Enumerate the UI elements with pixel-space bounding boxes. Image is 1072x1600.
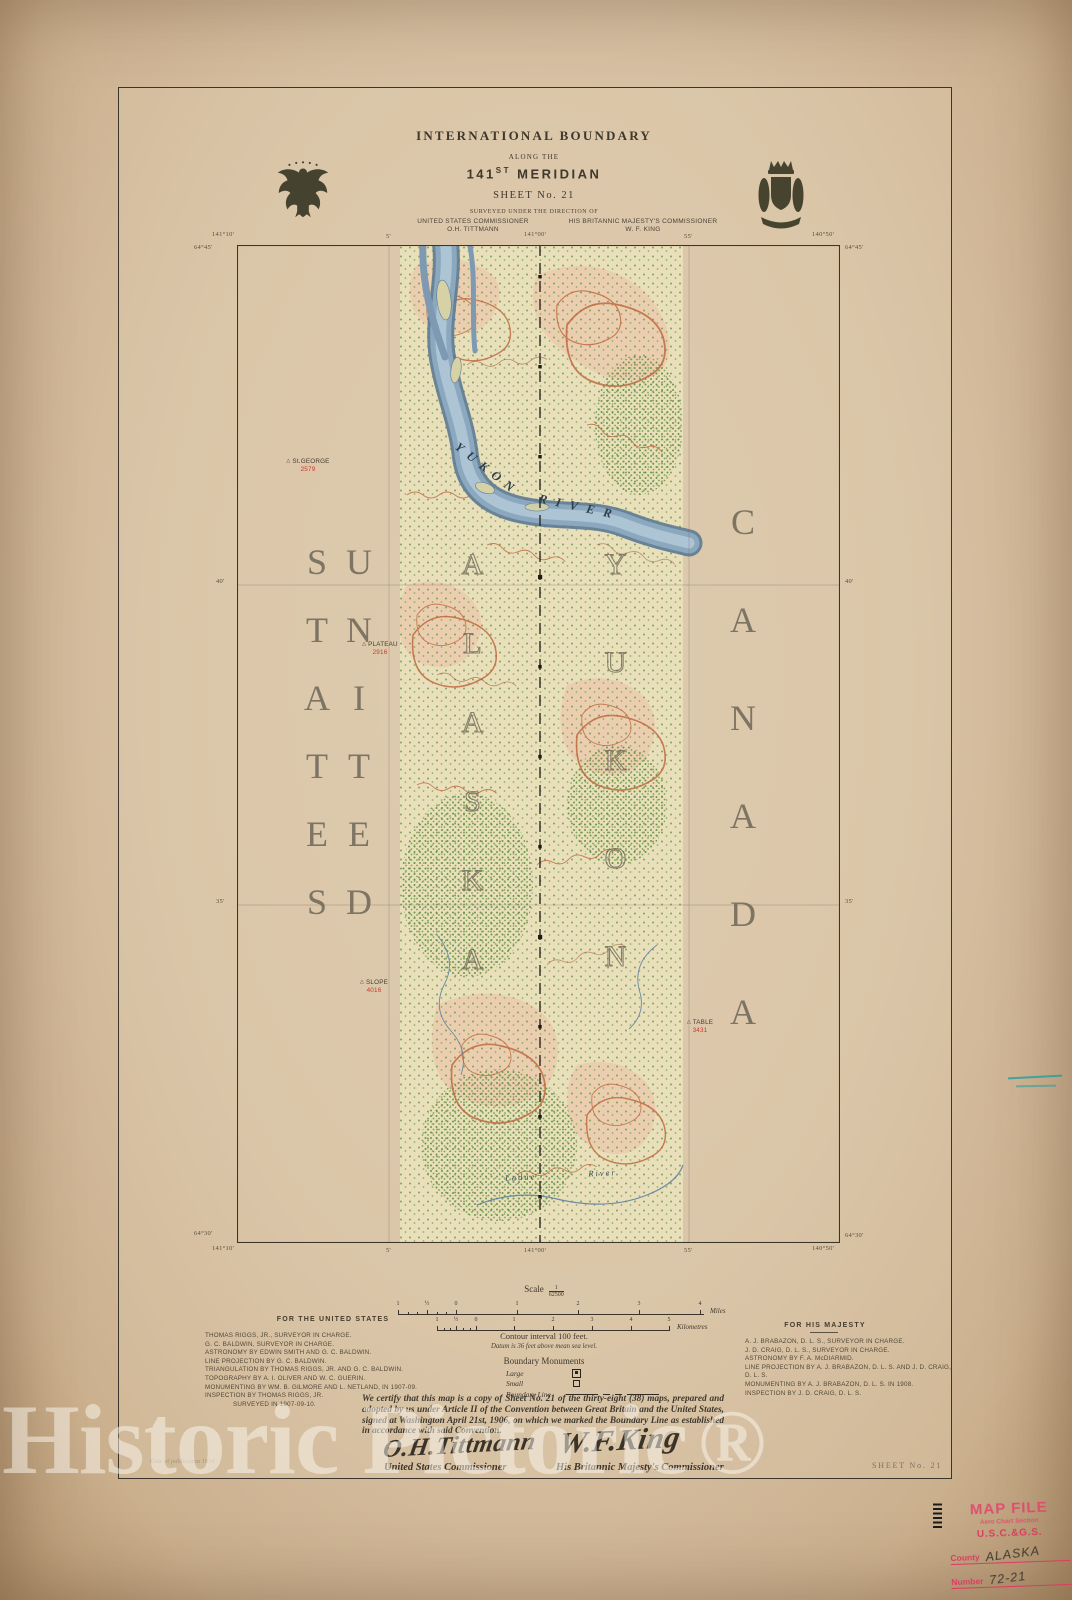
contour-interval-note: Contour interval 100 feet. [434, 1331, 654, 1341]
us-signature-title: United States Commissioner [384, 1462, 507, 1473]
scale-tick-label: 0 [455, 1301, 458, 1307]
triangle-icon: △ [362, 641, 366, 647]
credit-line: A. J. BRABAZON, D. L. S., SURVEYOR IN CH… [745, 1338, 955, 1347]
number-label: Number [951, 1576, 983, 1587]
graticule-label: 55' [684, 233, 693, 240]
graticule-label: 55' [684, 1247, 693, 1254]
credit-line: J. D. CRAIG, D. L. S., SURVEYOR IN CHARG… [745, 1347, 955, 1356]
graticule-label: 64°45' [194, 244, 213, 251]
scale-tick-label: 3 [638, 1301, 641, 1307]
scale-tick-label: 2 [552, 1317, 555, 1323]
credit-line: MONUMENTING BY A. J. BRABAZON, D. L. S. … [745, 1381, 955, 1390]
uk-commissioner-name: W. F. KING [548, 226, 738, 234]
station-elevation: 4016 [342, 987, 406, 994]
map-file-stamp: MAP FILE Aero Chart Section U.S.C.&G.S. … [949, 1498, 1072, 1589]
station-name: TABLE [693, 1019, 713, 1026]
monument-large-icon [572, 1369, 581, 1378]
scale-denominator: 62500 [549, 1291, 564, 1299]
country-label-canada: CANADA [722, 502, 764, 1014]
legend-large-label: Large [506, 1369, 524, 1378]
triangle-icon: △ [360, 979, 364, 985]
graticule-label: 35' [216, 898, 225, 905]
graticule-label: 140°50' [812, 231, 834, 238]
teal-pen-mark [1016, 1085, 1056, 1088]
miles-unit-label: Miles [710, 1307, 726, 1315]
scale-tick-label: 1 [516, 1301, 519, 1307]
scale-fraction: 162500 [549, 1285, 564, 1299]
map-sheet-photo: INTERNATIONAL BOUNDARY ALONG THE 141ST M… [0, 0, 1072, 1600]
meridian-ordinal: ST [496, 166, 511, 175]
station-plateau: △ PLATEAU 2916 [348, 641, 412, 656]
number-value-handwritten: 72-21 [989, 1569, 1027, 1587]
stamp-agency: U.S.C.&G.S. [949, 1526, 1069, 1541]
credit-line: LINE PROJECTION BY A. J. BRABAZON, D. L.… [745, 1364, 955, 1381]
miles-scale-bar: 1 ½ 0 1 2 3 4 Miles [398, 1302, 704, 1318]
credit-line: G. C. BALDWIN, SURVEYOR IN CHARGE. [205, 1341, 465, 1350]
scale-tick-label: 5 [668, 1317, 671, 1323]
scale-tick-label: 4 [630, 1317, 633, 1323]
station-name: PLATEAU [368, 641, 398, 648]
credit-line: ASTRONOMY BY EDWIN SMITH AND G. C. BALDW… [205, 1349, 465, 1358]
credit-line: INSPECTION BY J. D. CRAIG, D. L. S. [745, 1390, 955, 1399]
credit-line: TRIANGULATION BY THOMAS RIGGS, JR. AND G… [205, 1366, 465, 1375]
graticule-label: 40' [216, 578, 225, 585]
region-label-yukon: YUKON [598, 548, 632, 966]
creek-word: River [588, 1167, 617, 1178]
scale-tick-label: ½ [425, 1301, 430, 1307]
stamp-county-row: County ALASKA [950, 1545, 1070, 1565]
creek-word: Ladue [505, 1171, 537, 1183]
teal-pen-mark [1008, 1075, 1062, 1080]
meridian-word: MERIDIAN [511, 166, 601, 181]
scale-statement: Scale162500 [434, 1284, 654, 1298]
region-label-alaska: ALASKA [455, 548, 489, 968]
scale-tick-label: 1 [513, 1317, 516, 1323]
station-table: △ TABLE 3431 [668, 1019, 732, 1034]
scale-tick-label: 1 [397, 1301, 400, 1307]
station-elevation: 2579 [276, 466, 340, 473]
credit-line: ASTRONOMY BY F. A. McDIARMID. [745, 1355, 955, 1364]
scale-numerator: 1 [555, 1285, 558, 1291]
station-elevation: 3431 [668, 1027, 732, 1034]
stamp-barcode-mark [933, 1502, 942, 1528]
scale-tick-label: ½ [454, 1317, 459, 1323]
uk-signature-title: His Britannic Majesty's Commissioner [556, 1462, 724, 1473]
credits-us-heading: FOR THE UNITED STATES [228, 1316, 438, 1323]
graticule-label: 64°45' [845, 244, 864, 251]
credit-line: MONUMENTING BY WM. B. GILMORE AND L. NET… [205, 1384, 465, 1393]
graticule-label: 35' [845, 898, 854, 905]
county-value-handwritten: ALASKA [985, 1544, 1041, 1565]
credit-line: TOPOGRAPHY BY A. I. OLIVER AND W. C. GUE… [205, 1375, 465, 1384]
uk-commissioner-label: HIS BRITANNIC MAJESTY'S COMMISSIONER [548, 218, 738, 226]
legend-small-label: Small [506, 1379, 523, 1388]
credits-uk-lines: A. J. BRABAZON, D. L. S., SURVEYOR IN CH… [745, 1338, 955, 1398]
us-commissioner-label: UNITED STATES COMMISSIONER [398, 218, 548, 226]
publication-date: Date of publication 1914 [150, 1458, 215, 1465]
station-name: SLOPE [366, 979, 388, 986]
station-name: St.GEORGE [292, 458, 329, 465]
graticule-label: 5' [386, 1247, 391, 1254]
station-slope: △ SLOPE 4016 [342, 979, 406, 994]
us-great-seal-icon [272, 160, 334, 224]
uk-commissioner-block: HIS BRITANNIC MAJESTY'S COMMISSIONER W. … [548, 218, 738, 234]
triangle-icon: △ [687, 1019, 691, 1025]
station-st-george: △ St.GEORGE 2579 [276, 458, 340, 473]
graticule-label: 141°10' [212, 231, 234, 238]
graticule-label: 141°00' [524, 231, 546, 238]
datum-note: Datum is 36 feet above mean sea level. [434, 1343, 654, 1350]
heading-rule [810, 1332, 838, 1333]
scale-tick-label: 2 [577, 1301, 580, 1307]
county-label: County [950, 1552, 980, 1563]
station-elevation: 2916 [348, 649, 412, 656]
graticule-label: 64°30' [845, 1232, 864, 1239]
scale-word: Scale [524, 1284, 544, 1294]
scale-tick-label: 0 [475, 1317, 478, 1323]
royal-arms-icon [757, 155, 805, 233]
scale-tick-label: 3 [591, 1317, 594, 1323]
meridian-number: 141 [467, 166, 496, 181]
graticule-label: 141°00' [524, 1247, 546, 1254]
scale-tick-label: 4 [699, 1301, 702, 1307]
graticule-label: 40' [845, 578, 854, 585]
scale-bar-line [398, 1314, 704, 1315]
credit-line: LINE PROJECTION BY G. C. BALDWIN. [205, 1358, 465, 1367]
monument-small-icon [573, 1380, 580, 1387]
credit-line: THOMAS RIGGS, JR., SURVEYOR IN CHARGE. [205, 1332, 465, 1341]
credits-uk-heading: FOR HIS MAJESTY [745, 1322, 905, 1329]
graticule-label: 5' [386, 233, 391, 240]
legend-title: Boundary Monuments [434, 1356, 654, 1366]
graticule-label: 64°30' [194, 1230, 213, 1237]
uk-commissioner-signature: W.F.King [557, 1421, 683, 1461]
kilometres-unit-label: Kilometres [677, 1323, 707, 1331]
map-title: INTERNATIONAL BOUNDARY [234, 128, 834, 144]
stamp-number-row: Number 72-21 [951, 1569, 1071, 1589]
triangle-icon: △ [286, 458, 290, 464]
graticule-label: 140°50' [812, 1245, 834, 1252]
graticule-label: 141°10' [212, 1245, 234, 1252]
sheet-number-footer: SHEET No. 21 [872, 1461, 942, 1470]
